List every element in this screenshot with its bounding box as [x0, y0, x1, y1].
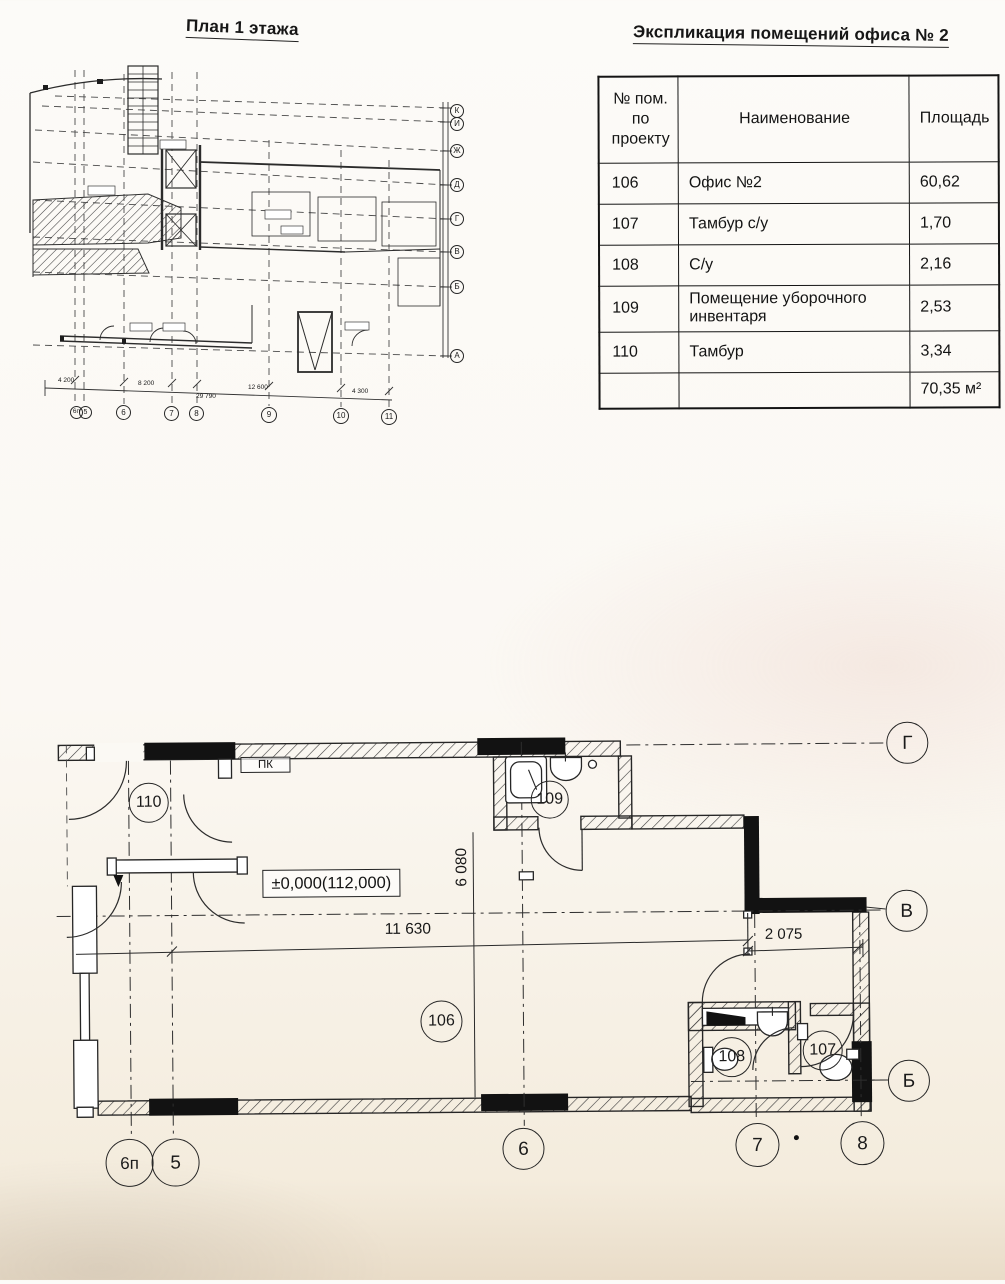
axis-circle-7-big: 7	[735, 1123, 779, 1167]
axis-circle-v-big: В	[885, 890, 927, 932]
axis-circle-6p-big: 6п	[105, 1139, 153, 1187]
room-label-106: 106	[420, 1000, 462, 1042]
room-label-108: 108	[712, 1037, 752, 1077]
reference-dashes	[66, 745, 67, 886]
axis-circle-6-big: 6	[502, 1128, 544, 1170]
dim-height: 6 080	[453, 837, 471, 897]
office-plan: 110 109 106 108 107 Г В Б 6п 5 6 7 8 11 …	[0, 0, 1005, 1284]
pk-label: ПК	[240, 757, 290, 773]
axis-lines	[55, 739, 887, 1137]
axis-circle-8-big: 8	[840, 1121, 884, 1165]
room-label-110: 110	[129, 783, 169, 823]
room-label-107: 107	[803, 1030, 843, 1070]
axis-circle-g-big: Г	[886, 722, 928, 764]
room-label-109: 109	[531, 780, 569, 818]
axis-circle-b-big: Б	[888, 1060, 930, 1102]
dim-width: 11 630	[385, 921, 431, 939]
axis-circle-5-big: 5	[151, 1138, 199, 1186]
door-opening	[94, 743, 143, 762]
dim-right: 2 075	[765, 926, 803, 943]
level-mark: ±0,000(112,000)	[262, 869, 400, 898]
